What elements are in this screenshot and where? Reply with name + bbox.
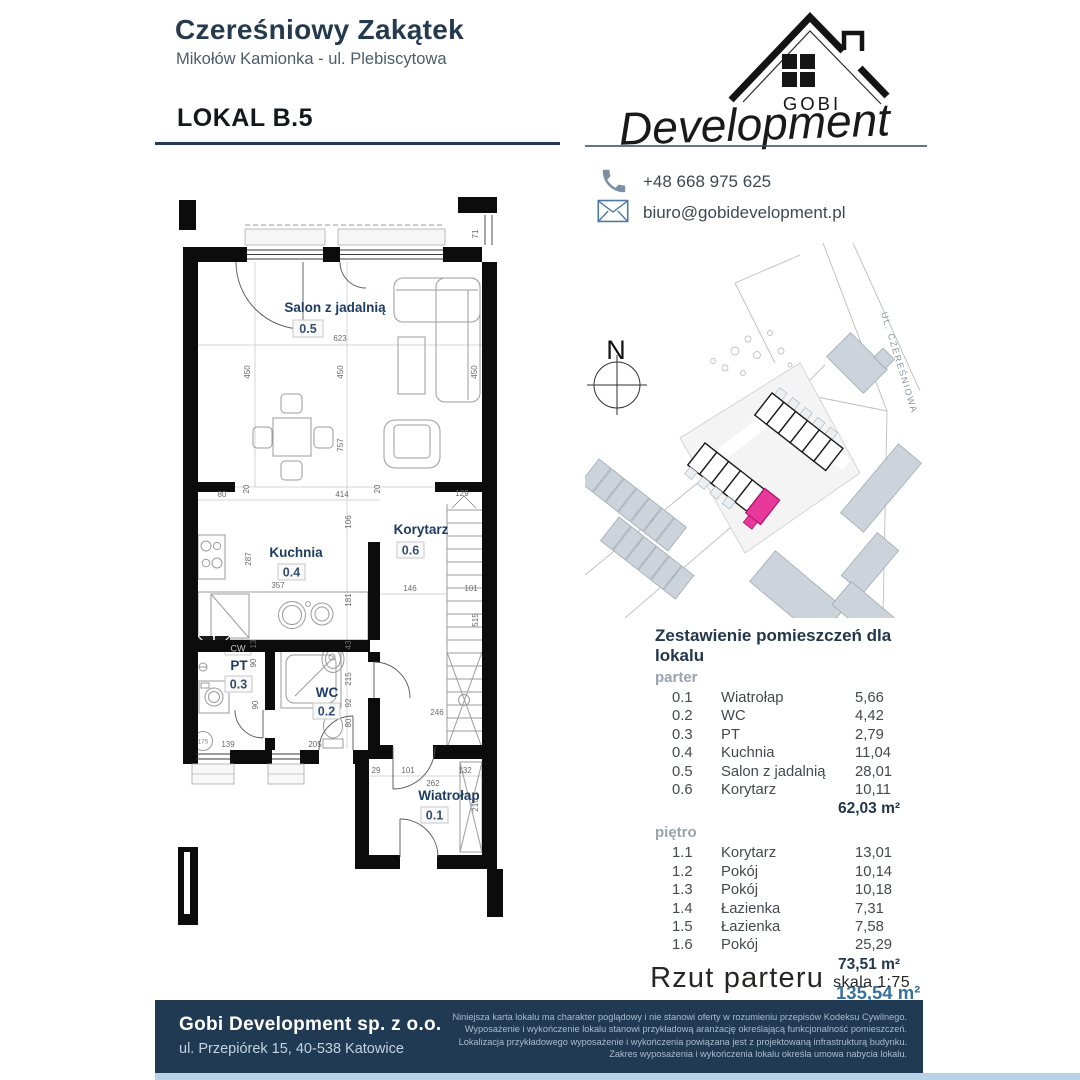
svg-text:216: 216 [471, 798, 480, 812]
disclaimer-line: Lokalizacja przykładowego wyposażenie i … [453, 1036, 908, 1048]
toilet [323, 739, 343, 748]
room-label-salon: Salon z jadalnią [284, 300, 386, 315]
page-title: Czereśniowy Zakątek [175, 14, 464, 46]
site-map: N UL. CZEREŚNIOWA [585, 243, 930, 618]
svg-text:101: 101 [401, 766, 415, 775]
armchair [384, 420, 440, 468]
svg-text:414: 414 [335, 490, 349, 499]
header-divider [155, 142, 560, 145]
table-row: 0.1 Wiatrołap 5,66 [655, 689, 921, 707]
svg-text:20: 20 [242, 484, 251, 493]
room-label-korytarz: Korytarz [394, 522, 449, 537]
svg-text:246: 246 [430, 708, 444, 717]
svg-text:80: 80 [344, 718, 353, 727]
table-row: 0.3 PT 2,79 [655, 726, 921, 744]
disclaimer-line: Wyposażenie i wykończenie lokalu stanowi… [453, 1023, 908, 1035]
svg-text:13: 13 [249, 639, 258, 648]
svg-text:181: 181 [344, 593, 353, 607]
svg-text:71: 71 [471, 229, 480, 238]
coffee-table [398, 337, 425, 394]
svg-text:80: 80 [218, 490, 227, 499]
room-label-pt: PT [230, 658, 248, 673]
table-title: Zestawienie pomieszczeń dla lokalu [655, 626, 921, 666]
logo-chimney [844, 33, 862, 51]
table-row: 0.4 Kuchnia 11,04 [655, 744, 921, 762]
room-label-kuchnia: Kuchnia [269, 545, 323, 560]
table-row: 1.5 Łazienka 7,58 [655, 918, 921, 936]
svg-text:106: 106 [344, 515, 353, 529]
svg-text:357: 357 [271, 581, 285, 590]
page-subtitle: Mikołów Kamionka - ul. Plebiscytowa [176, 50, 447, 69]
table-row: 0.2 WC 4,42 [655, 707, 921, 725]
table-row: 1.2 Pokój 10,14 [655, 863, 921, 881]
parter-total: 62,03 m² [655, 799, 921, 819]
stairs [447, 510, 482, 748]
table-row: 0.5 Salon z jadalnią 28,01 [655, 763, 921, 781]
room-label-wc: WC [316, 685, 339, 700]
company-logo: GOBI Development [583, 0, 933, 165]
svg-text:623: 623 [333, 334, 347, 343]
svg-text:20: 20 [373, 484, 382, 493]
svg-text:175: 175 [198, 739, 209, 746]
floor-plan: Salon z jadalnią 0.5 Kuchnia 0.4 Korytar… [165, 192, 515, 967]
svg-text:29: 29 [372, 766, 381, 775]
dining-table [273, 418, 311, 456]
email-address[interactable]: biuro@gobidevelopment.pl [643, 203, 846, 223]
svg-text:0.5: 0.5 [299, 322, 316, 336]
compass-north-label: N [606, 335, 626, 365]
svg-text:129: 129 [455, 489, 469, 498]
svg-text:757: 757 [336, 438, 345, 452]
svg-text:CW: CW [231, 644, 246, 654]
table-row: 1.6 Pokój 25,29 [655, 936, 921, 954]
svg-text:43: 43 [344, 640, 353, 649]
footer-band: Gobi Development sp. z o.o. ul. Przepiór… [155, 1000, 923, 1073]
svg-text:132: 132 [458, 766, 472, 775]
company-name: Gobi Development sp. z o.o. [179, 1014, 442, 1036]
svg-text:0.4: 0.4 [283, 566, 300, 580]
phone-number[interactable]: +48 668 975 625 [643, 172, 771, 192]
section-label-pietro: piętro [655, 824, 921, 841]
room-summary-table: Zestawienie pomieszczeń dla lokalu parte… [655, 626, 921, 1004]
svg-text:90: 90 [251, 700, 260, 709]
svg-text:205: 205 [308, 740, 322, 749]
svg-text:92: 92 [344, 698, 353, 707]
svg-text:215: 215 [344, 672, 353, 686]
map-trees [711, 331, 793, 376]
table-row: 1.1 Korytarz 13,01 [655, 844, 921, 862]
disclaimer-line: Niniejsza karta lokalu ma charakter pogl… [453, 1011, 908, 1023]
svg-text:287: 287 [244, 552, 253, 566]
dimension-labels: 71 623 450 450 450 757 20 20 80 414 129 … [198, 229, 480, 812]
table-row: 1.4 Łazienka 7,31 [655, 900, 921, 918]
table-row: 0.6 Korytarz 10,11 [655, 781, 921, 799]
svg-text:0.6: 0.6 [402, 544, 419, 558]
svg-text:0.3: 0.3 [230, 678, 247, 692]
email-icon [597, 199, 629, 223]
svg-text:450: 450 [243, 365, 252, 379]
svg-text:262: 262 [426, 779, 440, 788]
room-labels: Salon z jadalnią 0.5 Kuchnia 0.4 Korytar… [225, 300, 480, 823]
company-address: ul. Przepiórek 15, 40-538 Katowice [179, 1041, 442, 1057]
phone-icon [599, 166, 629, 196]
table-row: 1.3 Pokój 10,18 [655, 881, 921, 899]
svg-text:90: 90 [249, 658, 258, 667]
logo-window-icon [782, 54, 815, 87]
footer-strip [155, 1073, 1080, 1080]
unit-card-page: Czereśniowy Zakątek Mikołów Kamionka - u… [0, 0, 1080, 1080]
furniture-layer [194, 278, 483, 852]
sofa [394, 278, 480, 322]
svg-text:146: 146 [403, 584, 417, 593]
svg-text:515: 515 [471, 613, 480, 627]
plan-caption: Rzut parteruskala 1:75 [560, 962, 910, 995]
plan-caption-scale: skala 1:75 [833, 974, 910, 991]
compass: N [587, 335, 647, 415]
disclaimer-line: Zakres wyposażenia i wykończenia lokalu … [453, 1048, 908, 1060]
svg-text:450: 450 [470, 365, 479, 379]
unit-label: LOKAL B.5 [177, 104, 313, 133]
svg-text:0.1: 0.1 [426, 809, 443, 823]
company-block: Gobi Development sp. z o.o. ul. Przepiór… [179, 1014, 442, 1057]
svg-text:139: 139 [221, 740, 235, 749]
svg-text:0.2: 0.2 [318, 705, 335, 719]
svg-text:101: 101 [464, 584, 478, 593]
stove [198, 535, 225, 579]
disclaimer: Niniejsza karta lokalu ma charakter pogl… [453, 1011, 908, 1060]
plan-caption-title: Rzut parteru [650, 962, 824, 994]
section-label-parter: parter [655, 669, 921, 686]
svg-text:450: 450 [336, 365, 345, 379]
